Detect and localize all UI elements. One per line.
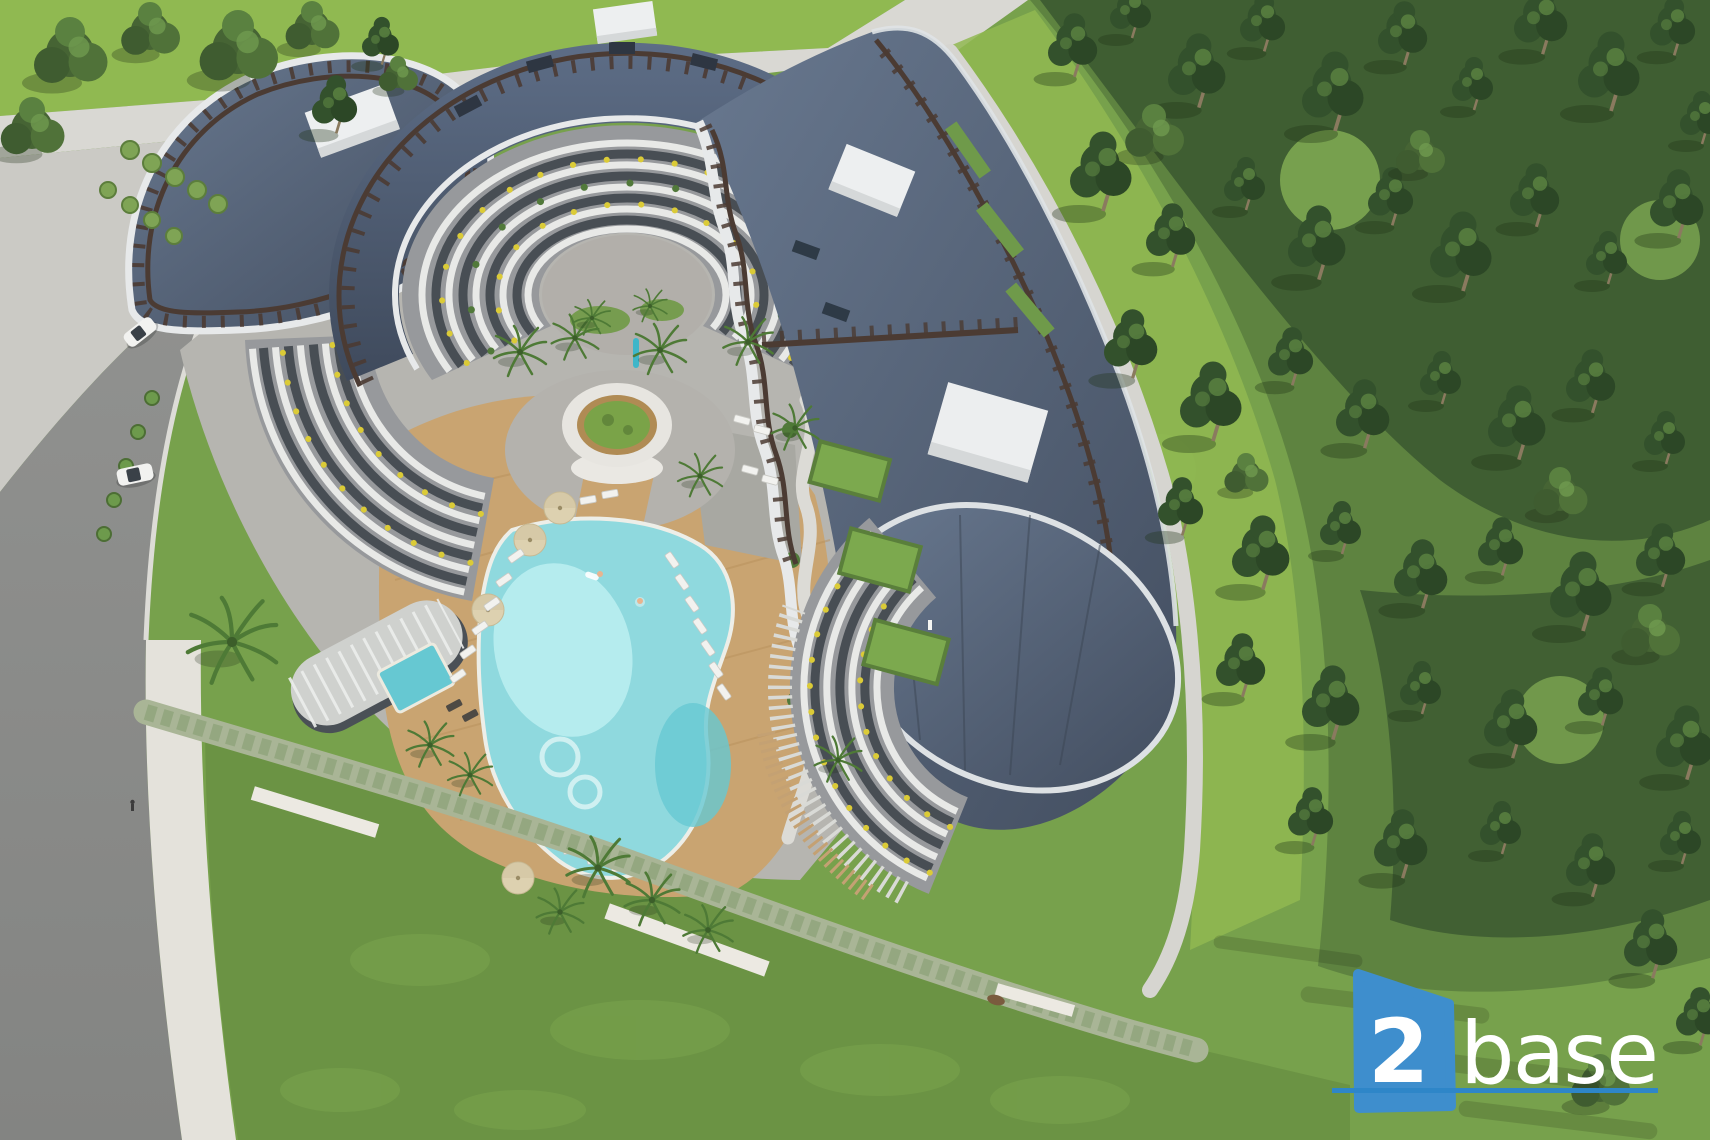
planter-shrub — [623, 425, 633, 435]
balcony-person — [928, 620, 932, 630]
aerial-render: 2 base — [0, 0, 1710, 1140]
pool-deep-area — [655, 703, 731, 827]
inner-courtyard — [542, 235, 712, 355]
parasol — [502, 862, 534, 894]
swimmer — [597, 571, 603, 577]
planter-shrub — [602, 414, 614, 426]
logo-number: 2 — [1368, 1008, 1429, 1096]
logo-wordmark: base — [1460, 1011, 1657, 1097]
parasol — [544, 492, 576, 524]
round-planter-garden — [584, 401, 650, 449]
brand-logo: 2 base — [1330, 966, 1665, 1118]
swimmer — [637, 598, 643, 604]
